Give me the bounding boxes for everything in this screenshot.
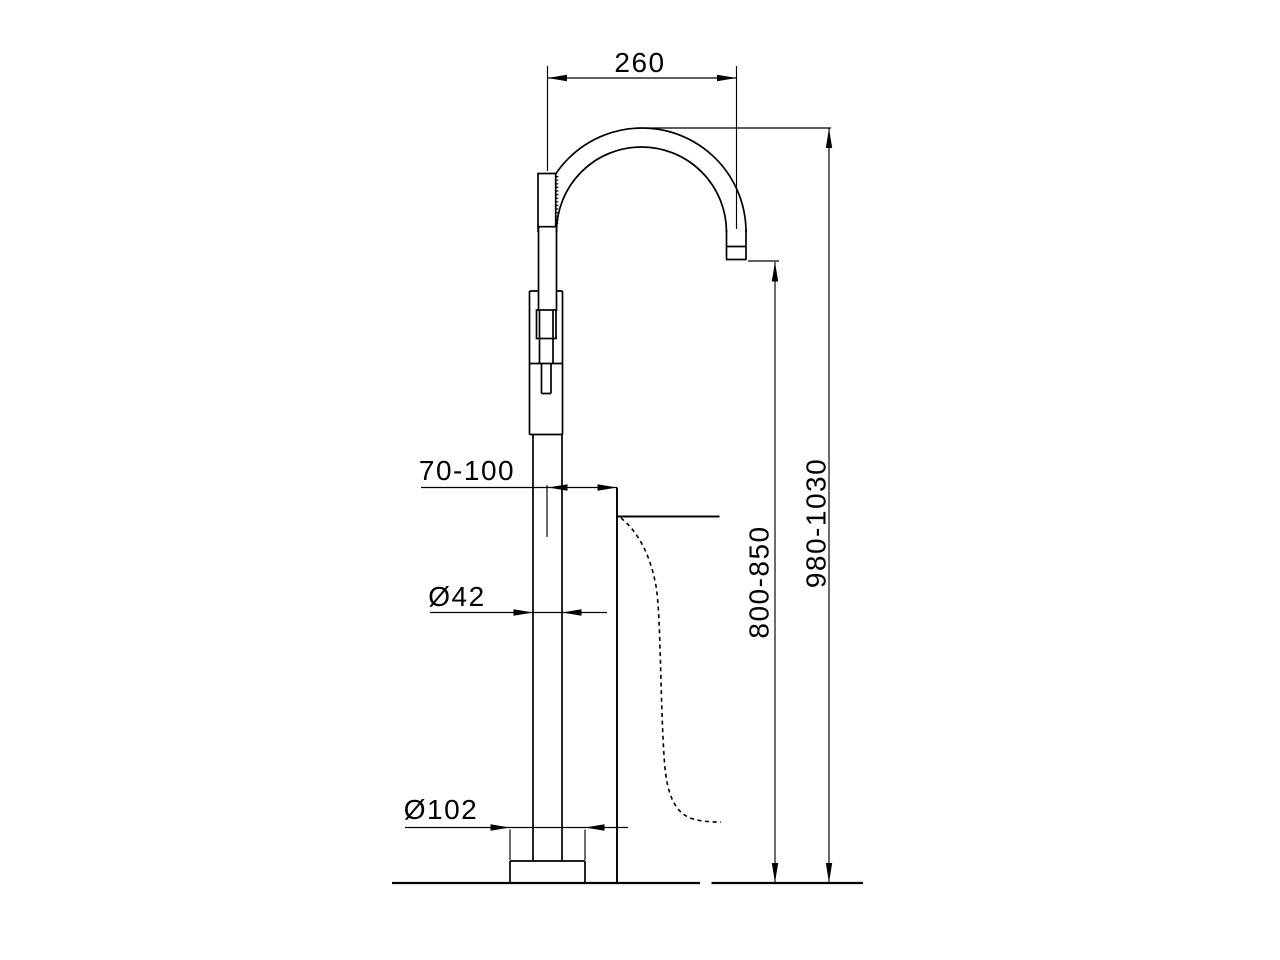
technical-drawing-canvas bbox=[0, 0, 1280, 960]
dim-102-line bbox=[405, 828, 628, 861]
dim-42-arrow-left bbox=[514, 609, 534, 615]
dimension-label-tub-edge-offset: 70-100 bbox=[419, 456, 515, 487]
faucet-outline bbox=[510, 128, 747, 883]
dimension-label-overall-height: 980-1030 bbox=[802, 458, 833, 588]
bathtub-outline bbox=[616, 488, 721, 883]
gooseneck-inner-arc bbox=[557, 147, 727, 232]
valve-sleeve bbox=[530, 291, 563, 435]
dim-70-100-arrow-right bbox=[598, 484, 618, 490]
handle-stem bbox=[542, 364, 552, 394]
tub-inner-wall-dashed bbox=[621, 518, 721, 822]
dimension-label-spout-outlet-height: 800-850 bbox=[745, 525, 776, 638]
technical-drawing-page: 260 70-100 Ø42 Ø102 800-850 980-1030 bbox=[0, 0, 1280, 960]
dim-70-100-line bbox=[421, 485, 617, 537]
dim-800-850-arrow-top bbox=[772, 262, 778, 282]
dim-260-arrow-left bbox=[548, 75, 568, 81]
handle-inner-faces bbox=[540, 310, 554, 364]
riser-pipe bbox=[539, 227, 557, 311]
gooseneck-outer-arc bbox=[538, 128, 746, 232]
spout-tip bbox=[726, 230, 747, 260]
hand-shower-head bbox=[538, 174, 556, 227]
dimension-label-base-diameter: Ø102 bbox=[404, 795, 479, 826]
dim-260-arrow-right bbox=[717, 75, 737, 81]
base-plate bbox=[510, 861, 585, 883]
mixer-handle bbox=[537, 310, 557, 394]
dim-102-arrow-right bbox=[585, 824, 605, 830]
dimension-label-column-diameter: Ø42 bbox=[428, 582, 485, 613]
dim-70-100-arrow-left bbox=[548, 484, 568, 490]
dim-980-1030-arrow-top bbox=[826, 129, 832, 149]
dim-800-850-arrow-bottom bbox=[772, 863, 778, 883]
dimension-label-spout-reach: 260 bbox=[614, 48, 665, 79]
dim-102-arrow-left bbox=[491, 824, 511, 830]
dim-980-1030-arrow-bottom bbox=[826, 863, 832, 883]
dim-42-arrow-right bbox=[562, 609, 582, 615]
